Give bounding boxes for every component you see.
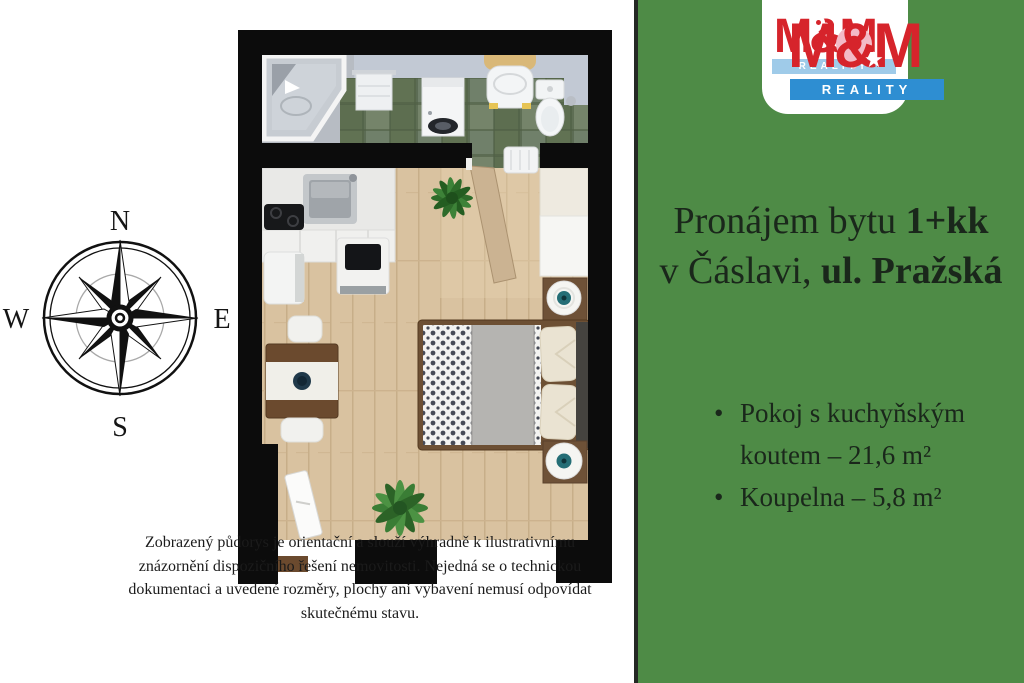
compass-label-east: E [213,304,230,335]
mm-reality-logo-front: M&M [788,15,919,78]
feature-item: Pokoj s kuchyňským koutem – 21,6 m² [714,392,982,476]
disclaimer-line: znázornění dispozičního řešení nemovitos… [95,555,625,579]
disclaimer-line: skutečnému stavu. [95,602,625,626]
nightstand-top [543,278,587,320]
door-jamb [466,158,472,170]
feature-item: Koupelna – 5,8 m² [714,476,982,518]
fridge [264,252,304,304]
feature-list: Pokoj s kuchyňským koutem – 21,6 m² Koup… [714,392,982,518]
compass-label-north: N [110,206,130,237]
compass-label-west: W [3,304,30,335]
towel-rail [352,70,396,110]
real-estate-flyer: N S E W Zobrazený půdorys je orientační … [0,0,1024,683]
washing-machine [422,78,464,136]
star-icon: ★ [864,48,884,73]
info-panel: M&M REALITY M&M ★ REALITY Pronájem bytu … [638,0,1024,683]
dining-table [266,344,338,418]
mm-reality-wordmark-front: REALITY [790,79,944,100]
bathroom-vanity [484,48,536,109]
title-line-1: Pronájem bytu 1+kk [646,196,1016,246]
wardrobe [540,168,588,276]
kitchen-island [337,238,389,294]
bed [418,320,590,450]
title-line-2: v Čáslavi, ul. Pražská [646,246,1016,296]
dining-chair-top [288,316,322,342]
compass-label-south: S [112,412,128,443]
compass-rose: N S E W [3,206,231,443]
entry-radiator [504,147,538,173]
disclaimer-line: Zobrazený půdorys je orientační a slouží… [95,531,625,555]
floorplan-disclaimer: Zobrazený půdorys je orientační a slouží… [95,531,625,625]
nightstand-bottom [543,441,587,483]
cooktop [264,204,304,230]
dining-chair-bottom [281,418,323,442]
listing-title: Pronájem bytu 1+kk v Čáslavi, ul. Pražsk… [646,196,1016,296]
disclaimer-line: dokumentaci a uvedené rozměry, plochy an… [95,578,625,602]
